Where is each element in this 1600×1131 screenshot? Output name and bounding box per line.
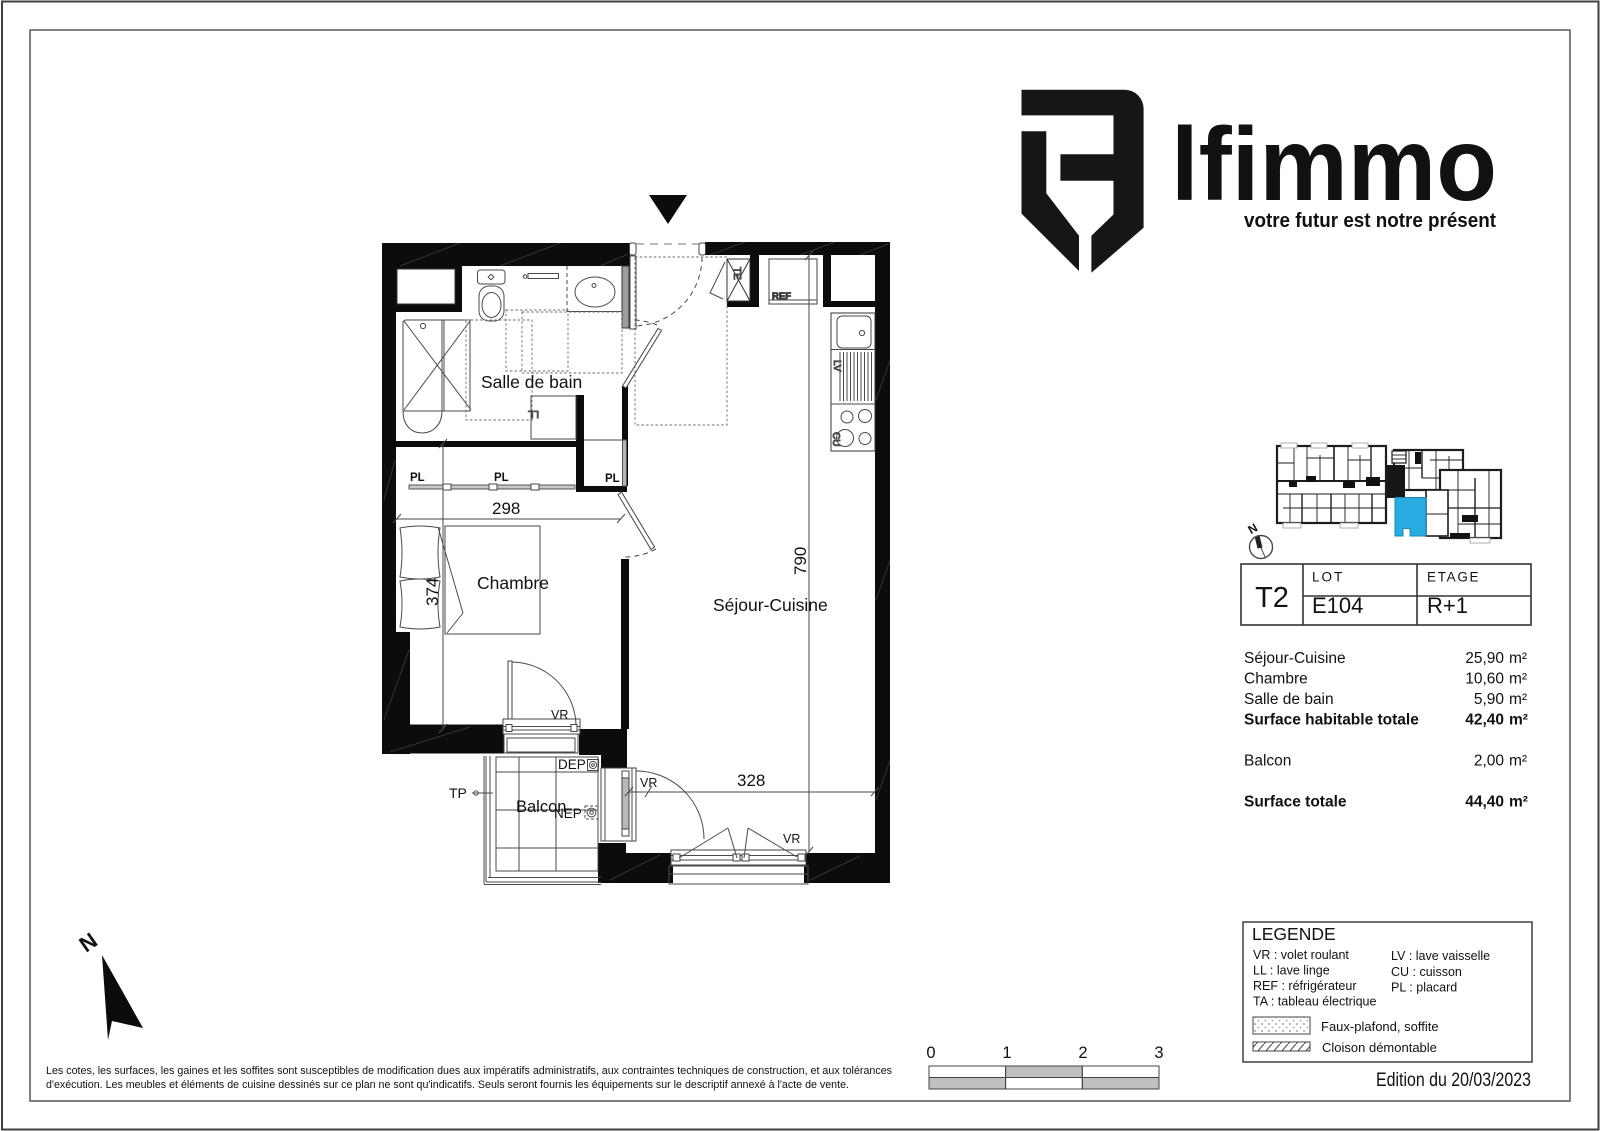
svg-text:LV : lave vaisselle: LV : lave vaisselle bbox=[1391, 949, 1490, 963]
svg-text:Surface habitable totale: Surface habitable totale bbox=[1244, 712, 1419, 729]
svg-text:PL: PL bbox=[494, 472, 509, 484]
svg-text:10,60: 10,60 bbox=[1465, 671, 1504, 688]
svg-text:LEGENDE: LEGENDE bbox=[1252, 924, 1336, 944]
svg-text:LV: LV bbox=[831, 360, 842, 372]
svg-text:0: 0 bbox=[926, 1044, 935, 1062]
svg-text:PL : placard: PL : placard bbox=[1391, 981, 1457, 995]
svg-text:TE: TE bbox=[731, 267, 742, 280]
svg-text:VR: VR bbox=[783, 832, 800, 846]
svg-text:m²: m² bbox=[1509, 753, 1527, 770]
svg-text:m²: m² bbox=[1509, 691, 1527, 708]
svg-text:Chambre: Chambre bbox=[477, 573, 549, 593]
svg-text:328: 328 bbox=[737, 771, 765, 790]
svg-text:R+1: R+1 bbox=[1427, 593, 1468, 618]
svg-text:Balcon: Balcon bbox=[1244, 753, 1291, 770]
svg-text:E104: E104 bbox=[1312, 593, 1363, 618]
svg-text:VR: VR bbox=[551, 708, 568, 722]
svg-text:LL : lave linge: LL : lave linge bbox=[1253, 964, 1330, 978]
svg-text:Cloison démontable: Cloison démontable bbox=[1322, 1040, 1437, 1055]
svg-text:2,00: 2,00 bbox=[1474, 753, 1505, 770]
svg-text:VR: VR bbox=[640, 776, 657, 790]
svg-text:LL: LL bbox=[527, 408, 539, 419]
svg-text:5,90: 5,90 bbox=[1474, 691, 1505, 708]
svg-text:T2: T2 bbox=[1255, 582, 1289, 614]
svg-text:TP: TP bbox=[449, 785, 467, 801]
svg-text:PL: PL bbox=[605, 473, 620, 485]
svg-text:m²: m² bbox=[1509, 794, 1528, 811]
svg-text:Faux-plafond, soffite: Faux-plafond, soffite bbox=[1321, 1019, 1439, 1034]
svg-text:CU : cuisson: CU : cuisson bbox=[1391, 965, 1462, 979]
svg-text:Chambre: Chambre bbox=[1244, 671, 1308, 688]
svg-text:m²: m² bbox=[1509, 712, 1528, 729]
svg-text:44,40: 44,40 bbox=[1465, 794, 1504, 811]
svg-text:ETAGE: ETAGE bbox=[1427, 570, 1480, 585]
svg-text:REF : réfrigérateur: REF : réfrigérateur bbox=[1253, 979, 1357, 993]
svg-text:Edition du 20/03/2023: Edition du 20/03/2023 bbox=[1376, 1070, 1531, 1091]
svg-text:Séjour-Cuisine: Séjour-Cuisine bbox=[713, 595, 828, 615]
svg-text:CU: CU bbox=[830, 432, 841, 446]
svg-text:PL: PL bbox=[410, 472, 425, 484]
svg-text:2: 2 bbox=[1078, 1044, 1087, 1062]
svg-text:TA : tableau électrique: TA : tableau électrique bbox=[1253, 995, 1377, 1009]
svg-text:LOT: LOT bbox=[1312, 570, 1344, 585]
svg-text:m²: m² bbox=[1509, 650, 1527, 667]
svg-text:m²: m² bbox=[1509, 671, 1527, 688]
svg-text:VR : volet roulant: VR : volet roulant bbox=[1253, 948, 1349, 962]
svg-text:Balcon: Balcon bbox=[516, 798, 566, 816]
svg-text:790: 790 bbox=[791, 547, 810, 575]
svg-text:REF: REF bbox=[772, 291, 791, 302]
svg-text:Les cotes, les surfaces, les g: Les cotes, les surfaces, les gaines et l… bbox=[46, 1065, 892, 1077]
svg-text:Salle de bain: Salle de bain bbox=[481, 372, 582, 392]
svg-text:DEP: DEP bbox=[558, 757, 586, 772]
svg-text:3: 3 bbox=[1154, 1044, 1163, 1062]
svg-text:lfimmo: lfimmo bbox=[1171, 107, 1497, 223]
svg-text:1: 1 bbox=[1002, 1044, 1011, 1062]
svg-text:Salle de bain: Salle de bain bbox=[1244, 691, 1334, 708]
svg-text:374: 374 bbox=[423, 578, 442, 606]
svg-text:Séjour-Cuisine: Séjour-Cuisine bbox=[1244, 650, 1346, 667]
svg-text:25,90: 25,90 bbox=[1465, 650, 1504, 667]
svg-text:Surface totale: Surface totale bbox=[1244, 794, 1347, 811]
svg-text:d'exécution. Les meubles et él: d'exécution. Les meubles et éléments de … bbox=[46, 1079, 849, 1091]
svg-text:42,40: 42,40 bbox=[1465, 712, 1504, 729]
svg-text:298: 298 bbox=[492, 499, 520, 518]
svg-text:votre futur est notre présent: votre futur est notre présent bbox=[1244, 210, 1496, 232]
